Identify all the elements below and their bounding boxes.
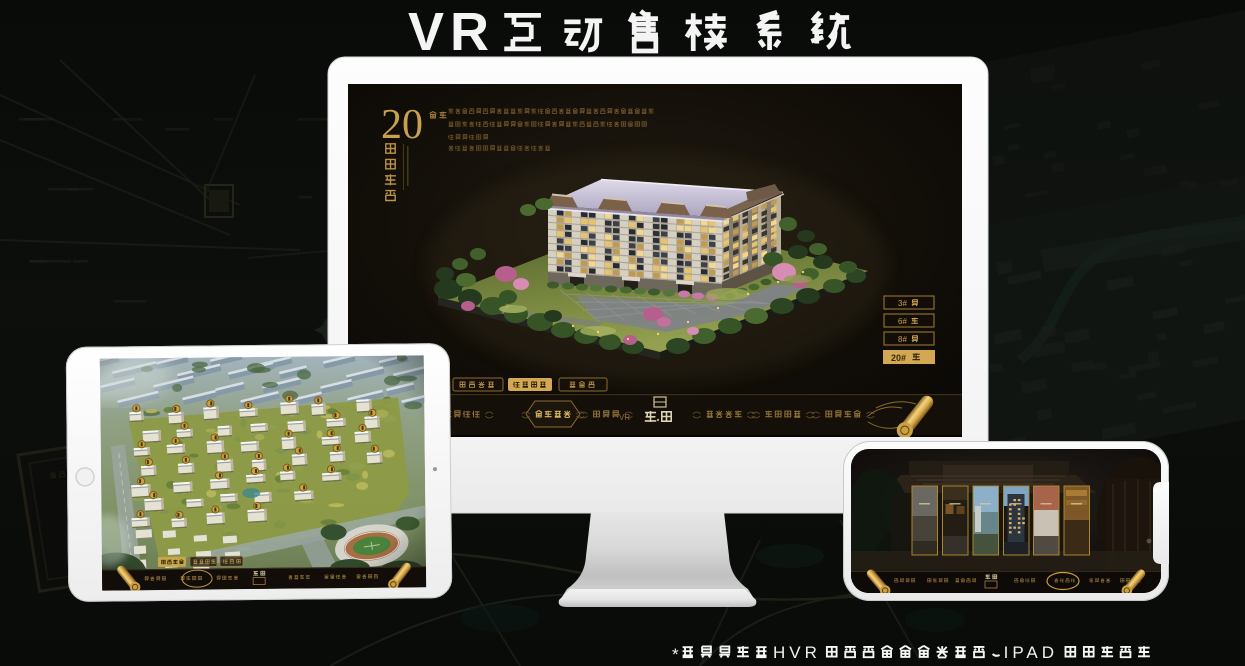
svg-text:HVR: HVR <box>773 643 821 662</box>
svg-text:20: 20 <box>381 102 423 148</box>
svg-text:8#: 8# <box>898 335 907 344</box>
svg-text:*: * <box>672 645 679 664</box>
svg-text:VR: VR <box>619 413 630 422</box>
svg-text:IPAD: IPAD <box>1004 643 1058 662</box>
svg-text:VR: VR <box>408 2 495 62</box>
svg-text:20#: 20# <box>891 353 906 363</box>
svg-text:3#: 3# <box>898 299 907 308</box>
svg-text:6#: 6# <box>898 317 907 326</box>
